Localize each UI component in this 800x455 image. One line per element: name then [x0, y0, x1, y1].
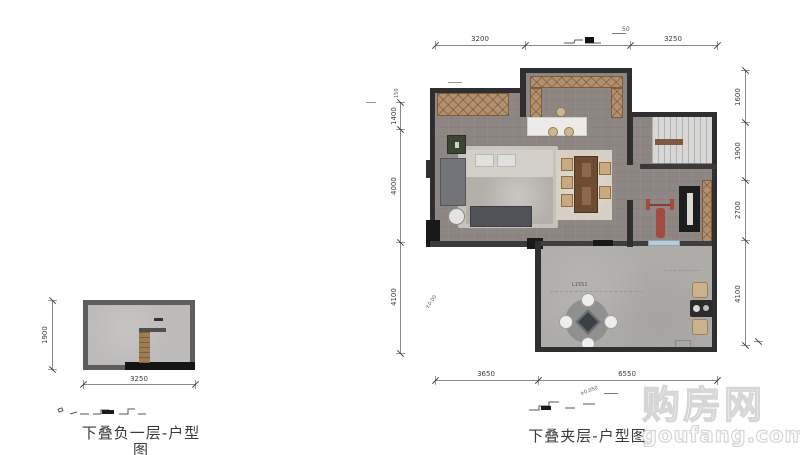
bbq-stool: [692, 319, 708, 335]
dim-line-bottom: [83, 384, 195, 385]
bed-bench: [470, 206, 532, 227]
dim-label: 4000: [391, 168, 398, 204]
dim-tick: [754, 341, 763, 342]
dim-tick: [741, 70, 750, 71]
bed-pillow: [497, 154, 516, 167]
dim-label: 6550: [607, 371, 647, 378]
dim-tick: [630, 41, 631, 50]
wall: [83, 365, 128, 370]
dim-tick: [538, 376, 539, 385]
walkin-closet-top: [530, 76, 623, 88]
wall: [712, 112, 717, 352]
dim-label: 1900: [42, 320, 49, 350]
terrace-note: L1551: [572, 283, 588, 288]
dim-label: 1400: [391, 103, 398, 129]
terrace-dashed-line: [550, 291, 642, 292]
bed-pillow: [475, 154, 494, 167]
dim-tick: [396, 129, 405, 130]
dim-tick: [435, 376, 436, 385]
wall: [520, 68, 632, 73]
terrace-dashed-line: [664, 270, 700, 271]
dim-tick: [48, 369, 57, 370]
dim-tick: [435, 41, 436, 50]
wall-black: [125, 362, 195, 370]
watermark-name: 购房网: [642, 386, 798, 424]
dim-tick: [525, 41, 526, 50]
wall: [520, 68, 526, 117]
section-symbol: [562, 33, 604, 47]
dim-tick: [195, 380, 196, 389]
level-note: 150: [395, 84, 400, 98]
gym-plate: [670, 199, 674, 210]
stair-landing: [139, 328, 166, 332]
desk-stool: [556, 107, 566, 117]
tea-stool: [561, 158, 573, 171]
stair-handrail: [655, 139, 683, 145]
dim-tick: [396, 353, 405, 354]
gym-cabinet: [702, 180, 712, 242]
dining-chair: [559, 315, 573, 329]
dim-tick: [741, 345, 750, 346]
dim-tick: [741, 122, 750, 123]
plant-cabinet: [447, 135, 466, 154]
dining-chair: [581, 293, 595, 307]
wall: [83, 300, 195, 305]
sketch-dash: [366, 102, 376, 103]
tea-stool: [561, 194, 573, 207]
dim-tick: [717, 41, 718, 50]
wall: [627, 200, 633, 247]
stair-section-sketch: [523, 394, 623, 416]
sketch-mark: [154, 318, 163, 321]
dim-label: 1600: [735, 84, 742, 110]
tea-table: [574, 156, 598, 213]
basement-stairs: [139, 331, 150, 363]
dim-label: 3250: [119, 376, 159, 383]
bbq-stool: [692, 282, 708, 298]
level-arrow: [604, 393, 618, 394]
wall: [627, 112, 717, 117]
gym-plate: [646, 199, 650, 210]
wall: [627, 117, 633, 165]
sketch-dash: [448, 82, 462, 83]
left-plan-title: 下叠负一层-户型图: [75, 425, 207, 455]
wall: [640, 164, 717, 169]
walkin-closet-left: [530, 88, 542, 118]
dim-tick: [83, 380, 84, 389]
sketch-mark: [57, 407, 63, 412]
watermark-domain: goufang.com: [642, 425, 798, 446]
wall: [627, 68, 632, 117]
dim-label: 1900: [735, 136, 742, 166]
dim-tick: [396, 242, 405, 243]
dim-label: 2700: [735, 195, 742, 225]
wall: [535, 347, 717, 352]
level-note: ±0.00: [425, 295, 438, 310]
terrace-floor: [541, 246, 712, 347]
wall: [190, 300, 195, 370]
dim-label: 3250: [653, 36, 693, 43]
dim-line-right: [745, 70, 746, 345]
tea-stool: [561, 176, 573, 189]
gym-equipment: [687, 193, 693, 225]
tea-stool: [599, 162, 611, 175]
wall: [535, 241, 541, 352]
dim-label: 4100: [735, 277, 742, 311]
bbq-grill: [690, 300, 713, 317]
walkin-closet-right: [611, 88, 623, 118]
dining-chair: [604, 315, 618, 329]
level-arrow: [612, 33, 626, 34]
dim-label: 3650: [466, 371, 506, 378]
dim-line-left: [52, 300, 53, 370]
watermark: 购房网 goufang.com: [642, 386, 798, 446]
dim-label: 4100: [391, 279, 398, 315]
dim-tick: [741, 180, 750, 181]
dim-tick: [48, 300, 57, 301]
dim-label: 3200: [460, 36, 500, 43]
wall-pier: [426, 160, 430, 178]
tea-stool: [599, 186, 611, 199]
side-table: [448, 208, 465, 225]
bedroom-wardrobe: [437, 93, 509, 116]
window: [648, 240, 680, 246]
dresser: [440, 158, 466, 206]
wall: [83, 300, 88, 370]
wall: [430, 241, 542, 247]
dim-line-bottom: [435, 380, 717, 381]
right-plan-title: 下叠夹层-户型图: [520, 428, 655, 445]
dim-tick: [741, 240, 750, 241]
floorplan-canvas: L1551 3200 3250 50 1400 4000 4100: [0, 0, 800, 455]
desk-stool: [564, 127, 574, 137]
desk-stool: [548, 127, 558, 137]
stair-section-sketch: [66, 401, 150, 419]
dim-line-left: [400, 102, 401, 353]
wall-black: [593, 240, 613, 246]
wall: [430, 88, 525, 93]
gym-bench: [656, 208, 665, 238]
